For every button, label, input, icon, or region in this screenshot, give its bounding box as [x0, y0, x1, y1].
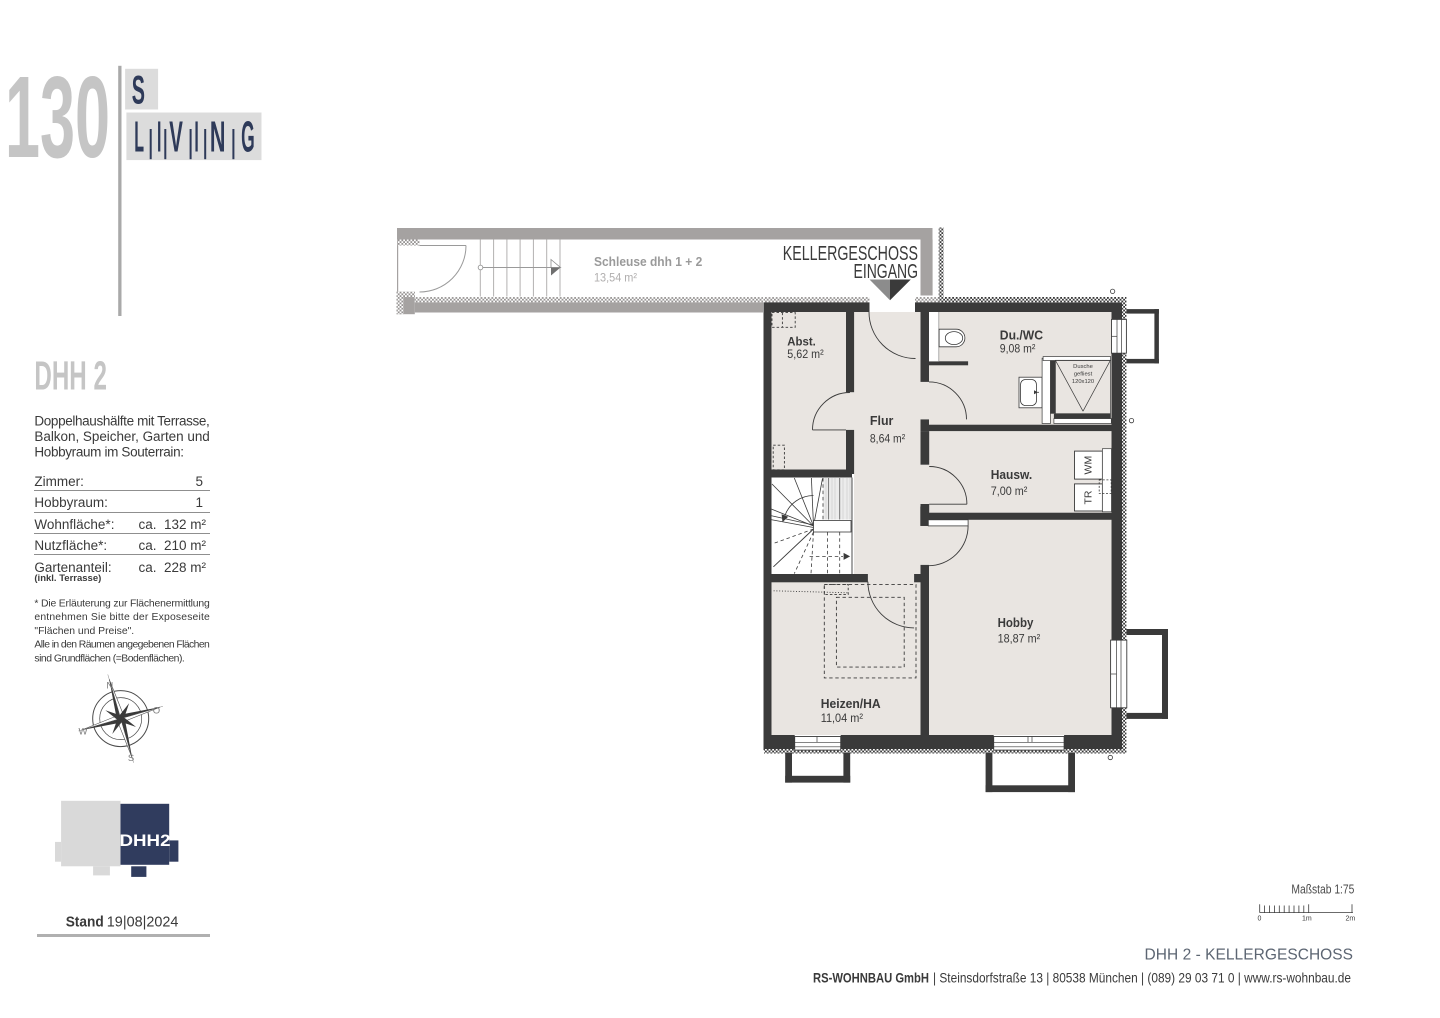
svg-text:Flur: Flur [870, 413, 894, 428]
svg-text:WM: WM [1083, 456, 1095, 475]
svg-text:1m: 1m [1302, 916, 1312, 923]
svg-text:N: N [210, 113, 226, 161]
svg-text:I: I [157, 113, 161, 161]
svg-text:19|08|2024: 19|08|2024 [107, 914, 179, 931]
svg-text:O: O [153, 706, 160, 717]
svg-text:DHH2: DHH2 [120, 832, 171, 850]
svg-text:G: G [241, 113, 255, 161]
svg-text:"Flächen und Preise".: "Flächen und Preise". [34, 626, 134, 637]
svg-text:120x120: 120x120 [1072, 379, 1094, 385]
svg-text:0: 0 [1258, 916, 1262, 923]
svg-text:* Die Erläuterung zur Flächene: * Die Erläuterung zur Flächenermittlung [34, 598, 210, 609]
svg-text:Balkon, Speicher, Garten und: Balkon, Speicher, Garten und [34, 429, 209, 444]
svg-text:TR: TR [1083, 490, 1095, 504]
svg-text:I: I [194, 113, 198, 161]
svg-text:Maßstab 1:75: Maßstab 1:75 [1291, 882, 1354, 897]
svg-text:5,62 m²: 5,62 m² [787, 347, 823, 361]
svg-text:8,64 m²: 8,64 m² [870, 432, 905, 446]
svg-text:W: W [79, 726, 88, 737]
svg-text:Hausw.: Hausw. [991, 467, 1032, 482]
svg-text:13,54 m²: 13,54 m² [594, 271, 637, 285]
svg-text:7,00 m²: 7,00 m² [991, 484, 1028, 498]
svg-text:entnehmen Sie bitte der Expose: entnehmen Sie bitte der Exposeseite [34, 612, 210, 623]
svg-text:S: S [132, 69, 145, 113]
svg-text:11,04 m²: 11,04 m² [821, 711, 863, 725]
svg-text:Du./WC: Du./WC [1000, 328, 1043, 343]
svg-text:| Steinsdorfstraße 13 | 80538: | Steinsdorfstraße 13 | 80538 München | … [933, 969, 1351, 985]
svg-text:L: L [134, 113, 144, 161]
svg-text:DHH 2 - KELLERGESCHOSS: DHH 2 - KELLERGESCHOSS [1145, 946, 1354, 963]
svg-text:Alle in den Räumen angegebenen: Alle in den Räumen angegebenen Flächen [34, 640, 210, 651]
svg-text:Abst.: Abst. [787, 334, 816, 348]
svg-text:DHH 2: DHH 2 [34, 353, 107, 396]
svg-text:2m: 2m [1346, 916, 1356, 923]
svg-text:Hobby: Hobby [998, 615, 1035, 630]
svg-text:N: N [106, 681, 113, 692]
svg-text:130: 130 [5, 60, 110, 182]
svg-text:RS-WOHNBAU GmbH: RS-WOHNBAU GmbH [813, 969, 929, 985]
svg-text:Stand: Stand [66, 914, 104, 931]
svg-text:Schleuse dhh 1 + 2: Schleuse dhh 1 + 2 [594, 254, 702, 269]
svg-text:Heizen/HA: Heizen/HA [821, 696, 881, 711]
svg-text:Hobbyraum im Souterrain:: Hobbyraum im Souterrain: [34, 445, 184, 460]
svg-text:gefliest: gefliest [1074, 371, 1093, 377]
svg-text:9,08 m²: 9,08 m² [1000, 342, 1036, 356]
svg-text:V: V [169, 113, 183, 161]
svg-text:18,87 m²: 18,87 m² [998, 632, 1041, 646]
svg-text:Doppelhaushälfte mit Terrasse,: Doppelhaushälfte mit Terrasse, [34, 414, 209, 429]
svg-text:S: S [128, 753, 134, 764]
svg-text:Dusche: Dusche [1073, 364, 1093, 370]
